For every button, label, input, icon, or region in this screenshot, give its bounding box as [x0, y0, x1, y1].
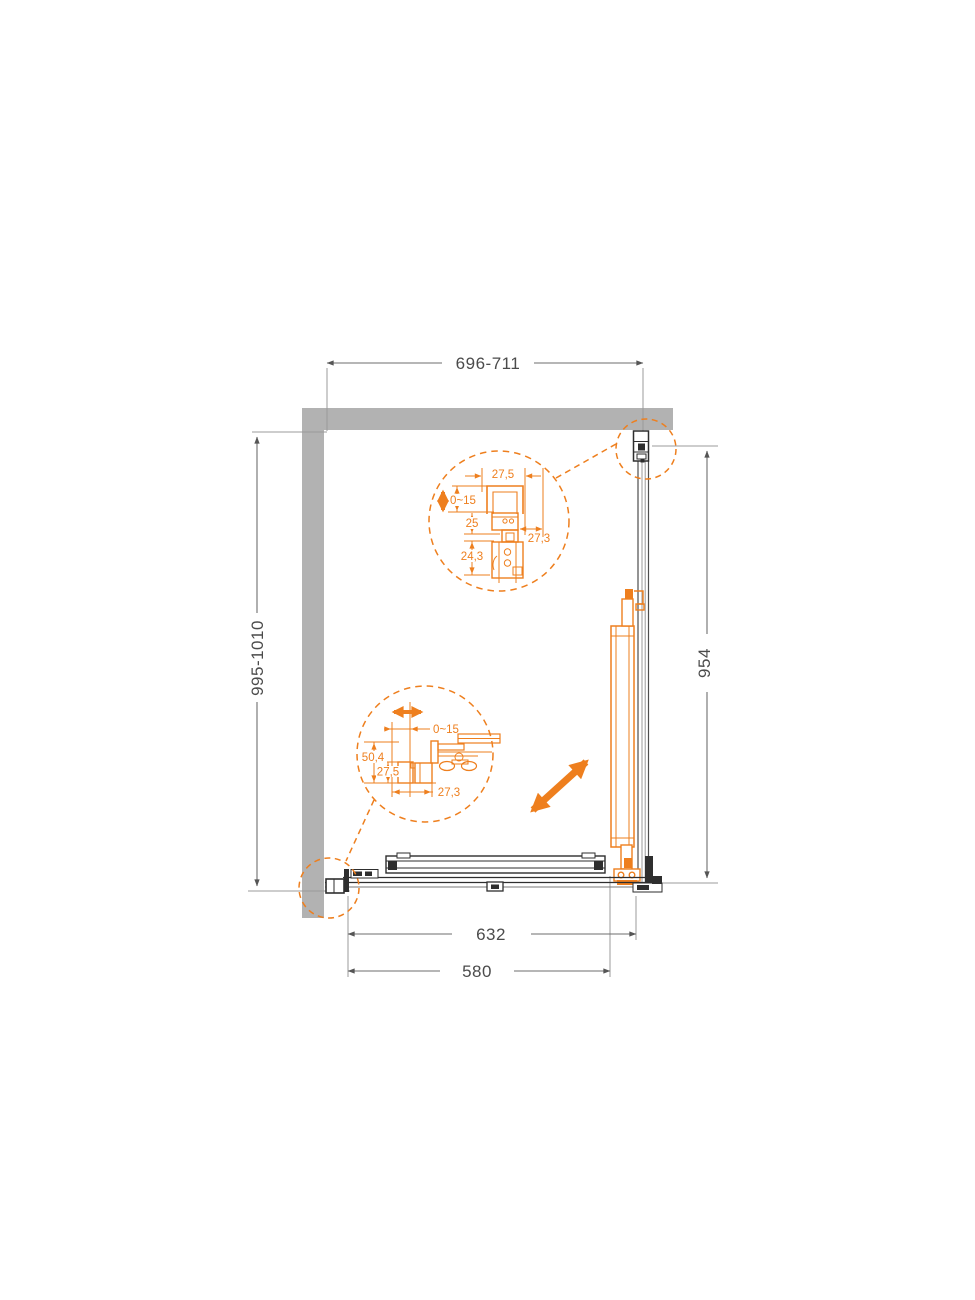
dim-left-depth: 995-1010 — [248, 432, 350, 891]
detail-label-profile-width: 27,5 — [492, 469, 514, 481]
screw — [504, 549, 510, 555]
floor-guide-block — [491, 885, 499, 890]
dim-label-top-width: 696-711 — [456, 354, 521, 373]
profile-body — [492, 513, 518, 530]
panel-bracket — [397, 853, 410, 858]
roller-wheel — [440, 762, 455, 771]
profile-u-outline — [487, 486, 523, 514]
dim-label-bottom-rail: 632 — [476, 925, 506, 944]
detail-label-total-depth: 50,4 — [362, 752, 385, 764]
dim-label-bottom-glass: 580 — [462, 962, 492, 981]
roller-wheel — [462, 762, 477, 771]
profile-square — [415, 763, 432, 783]
detail-leader-line — [556, 444, 616, 478]
screw — [509, 519, 513, 523]
roller-clip — [636, 604, 644, 610]
rail-arm — [438, 744, 464, 750]
dim-label-side-panel: 954 — [695, 648, 714, 678]
detail-label-profile-height: 27,5 — [377, 767, 399, 779]
panel-edge-lines — [638, 461, 649, 886]
profile-detail-block — [638, 444, 645, 451]
corner-block — [652, 876, 662, 884]
profile-detail-block — [641, 460, 645, 463]
drawing-page: 696-711 995-1010 954 632 580 — [0, 0, 975, 1300]
detail-bubble-bottom-profile: 0~15 50,4 27,5 27,3 — [357, 686, 500, 822]
sliding-door-panel — [611, 589, 644, 885]
wall-profile-body — [326, 879, 344, 893]
roller-bracket — [622, 599, 633, 626]
screw — [504, 560, 510, 566]
slide-direction-double-arrow-icon — [533, 762, 586, 810]
detail-label-adjustment: 0~15 — [433, 724, 459, 736]
screw — [503, 519, 507, 523]
wall-left — [302, 408, 324, 918]
profile-bracket — [431, 741, 438, 763]
door-top-roller — [622, 589, 644, 626]
holder-lines — [492, 542, 523, 583]
adjustment-bar — [344, 869, 349, 892]
side-panel-section — [634, 431, 649, 886]
door-panel-outline — [611, 626, 634, 847]
detail-label-inner-width: 25 — [466, 518, 479, 530]
detail-label-profile-depth: 27,3 — [528, 533, 550, 545]
door-glass-plan — [386, 856, 605, 873]
profile-block — [502, 530, 518, 542]
technical-drawing-canvas: 696-711 995-1010 954 632 580 — [0, 0, 975, 1300]
gasket-curve — [493, 556, 497, 570]
glass-end-cap — [388, 861, 397, 870]
dim-bottom-rail: 632 580 — [348, 876, 636, 981]
detail-label-holder-width: 24,3 — [461, 551, 483, 563]
glass-end-cap — [594, 861, 603, 870]
front-sliding-assembly — [325, 853, 662, 893]
panel-bracket — [582, 853, 595, 858]
guide-block — [624, 858, 632, 868]
clamp-block — [513, 567, 522, 575]
bracket-block — [365, 872, 372, 877]
door-panel-inner-lines — [611, 626, 634, 847]
detail-label-profile-depth: 27,3 — [438, 787, 460, 799]
detail-label-adjustment: 0~15 — [450, 495, 476, 507]
detail-leader-line — [346, 800, 374, 861]
wall-profile-bottom-left — [326, 869, 378, 893]
wall-top — [302, 408, 673, 430]
dim-side-panel: 954 — [652, 446, 718, 883]
wall — [302, 408, 673, 918]
corner-block — [637, 885, 649, 890]
rail-lines — [438, 752, 492, 756]
profile-block-inner — [506, 533, 514, 541]
detail-bubble-wall-profile: 27,5 0~15 25 24,3 27,3 — [429, 451, 569, 591]
door-bottom-guide — [614, 845, 640, 885]
glass-pane-lines — [642, 461, 645, 886]
profile-u-inner — [493, 492, 517, 514]
dim-label-left-depth: 995-1010 — [248, 620, 267, 696]
